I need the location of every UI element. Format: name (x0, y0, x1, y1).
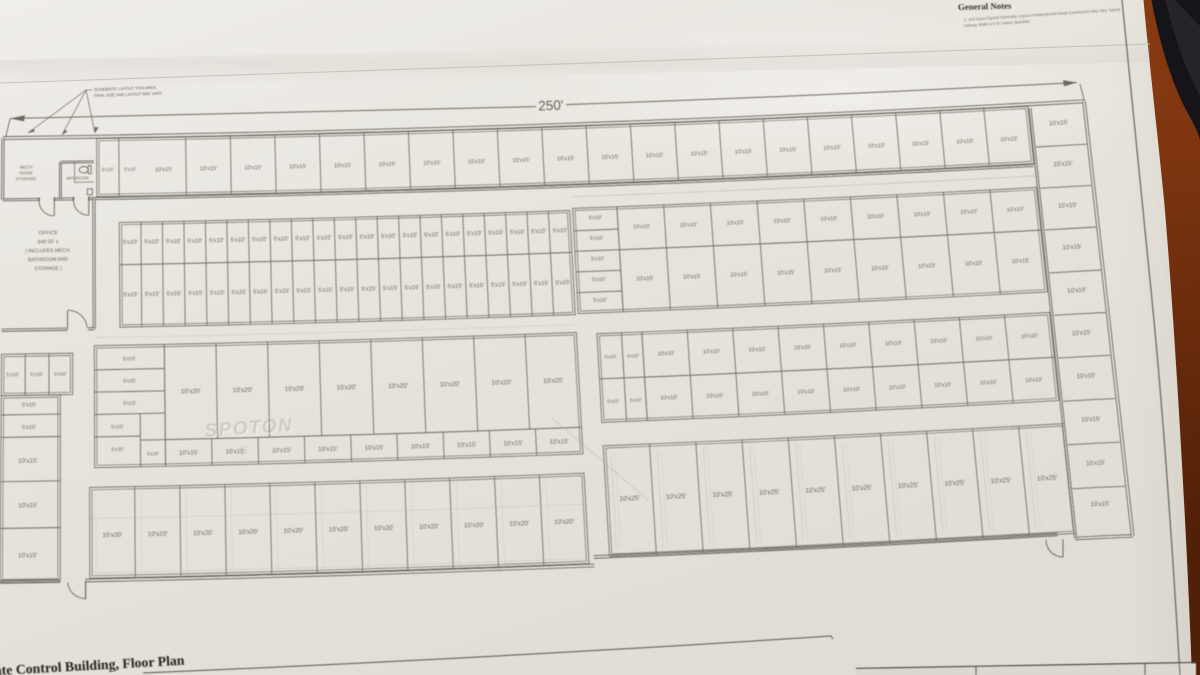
svg-text:5'x15': 5'x15' (22, 402, 36, 408)
svg-text:5'x10': 5'x10' (166, 239, 181, 245)
svg-text:10'x15': 10'x15' (735, 149, 753, 156)
svg-text:5'x10': 5'x10' (252, 237, 267, 243)
svg-text:10'x10': 10'x10' (706, 393, 723, 400)
svg-text:10'x15': 10'x15' (912, 141, 930, 148)
svg-text:10'x15': 10'x15' (601, 154, 619, 161)
svg-text:5'x15': 5'x15' (167, 291, 182, 297)
svg-text:5'x10': 5'x10' (488, 230, 503, 236)
svg-text:10'x15': 10'x15' (155, 167, 173, 173)
svg-text:5'x15': 5'x15' (275, 289, 290, 295)
svg-text:5'x15': 5'x15' (123, 292, 138, 298)
svg-text:10'x15': 10'x15' (690, 151, 708, 158)
svg-text:5'x10': 5'x10' (593, 297, 606, 303)
svg-text:10'x20': 10'x20' (543, 377, 563, 385)
svg-text:10'x15': 10'x15' (18, 458, 37, 465)
svg-text:5'x10': 5'x10' (592, 277, 605, 283)
svg-text:10'x20': 10'x20' (283, 527, 303, 535)
svg-text:10'x15': 10'x15' (200, 166, 218, 172)
svg-text:10'x15': 10'x15' (423, 160, 441, 167)
svg-text:10'x25': 10'x25' (1037, 474, 1058, 482)
svg-text:10'x20': 10'x20' (336, 384, 356, 392)
svg-text:10'x15': 10'x15' (871, 265, 889, 272)
svg-text:10'x10': 10'x10' (657, 351, 674, 358)
svg-text:5'x10': 5'x10' (30, 372, 43, 378)
svg-text:10'x15': 10'x15' (646, 153, 664, 160)
svg-text:5'x10': 5'x10' (590, 235, 603, 241)
svg-text:10'x20': 10'x20' (419, 523, 439, 531)
svg-text:10'x15': 10'x15' (18, 502, 37, 509)
svg-text:General Notes: General Notes (958, 1, 1012, 12)
svg-text:5'x10': 5'x10' (111, 447, 124, 453)
svg-text:ROOM: ROOM (19, 170, 33, 175)
svg-text:10'x15': 10'x15' (1067, 287, 1087, 295)
svg-text:10'x10': 10'x10' (913, 211, 930, 218)
svg-text:5'x10': 5'x10' (6, 372, 19, 378)
svg-text:5'x15': 5'x15' (318, 288, 333, 294)
svg-text:5'x15': 5'x15' (555, 280, 570, 287)
svg-text:5'x10': 5'x10' (510, 229, 525, 235)
svg-text:10'x15': 10'x15' (777, 270, 795, 277)
svg-text:10'x10': 10'x10' (660, 395, 677, 402)
svg-text:10'x15': 10'x15' (179, 449, 198, 456)
svg-text:5'x15': 5'x15' (232, 290, 247, 296)
svg-text:5'x15': 5'x15' (123, 378, 136, 384)
svg-text:10'x25': 10'x25' (712, 491, 733, 499)
svg-text:10'x15': 10'x15' (225, 448, 244, 455)
svg-text:5'x10': 5'x10' (630, 397, 642, 402)
svg-text:STORAGE: STORAGE (16, 176, 37, 181)
svg-text:5'x10': 5'x10' (381, 234, 396, 240)
svg-text:5'x15': 5'x15' (383, 286, 398, 292)
svg-text:BATHROOM: BATHROOM (66, 175, 88, 180)
svg-text:10'x10': 10'x10' (1007, 207, 1024, 214)
svg-text:5'x10': 5'x10' (274, 236, 289, 242)
svg-text:5'x10': 5'x10' (445, 232, 460, 238)
svg-text:840 SF ±: 840 SF ± (38, 239, 59, 245)
svg-text:10'x15': 10'x15' (823, 145, 841, 152)
svg-text:5'x10': 5'x10' (317, 235, 332, 241)
svg-text:5'x10': 5'x10' (402, 233, 417, 239)
svg-text:10'x20': 10'x20' (148, 531, 168, 538)
svg-text:10'x25': 10'x25' (759, 489, 780, 497)
svg-text:5'x10': 5'x10' (424, 232, 439, 238)
svg-text:10'x15': 10'x15' (956, 139, 974, 146)
svg-text:10'x10': 10'x10' (727, 220, 744, 227)
svg-text:5'x10': 5'x10' (295, 236, 310, 242)
svg-text:10'x10': 10'x10' (975, 336, 992, 343)
svg-text:5'x15': 5'x15' (123, 401, 136, 407)
svg-text:5'x15': 5'x15' (145, 292, 160, 298)
svg-text:10'x20': 10'x20' (440, 381, 460, 389)
svg-text:10'x20': 10'x20' (238, 529, 258, 537)
svg-text:10'x10': 10'x10' (867, 214, 884, 221)
svg-text:10'x10': 10'x10' (930, 338, 947, 345)
svg-text:5'x10': 5'x10' (531, 229, 546, 236)
svg-text:10'x15': 10'x15' (411, 443, 430, 451)
svg-text:5'x15': 5'x15' (188, 291, 203, 297)
svg-text:5'x15': 5'x15' (448, 284, 463, 290)
svg-text:10'x10': 10'x10' (820, 216, 837, 223)
svg-text:5'x15': 5'x15' (469, 283, 484, 289)
svg-text:10'x15': 10'x15' (334, 163, 352, 169)
svg-text:10'x20': 10'x20' (193, 530, 213, 537)
svg-text:10'x10': 10'x10' (794, 345, 811, 352)
svg-text:10'x20': 10'x20' (388, 383, 408, 391)
svg-text:10'x20': 10'x20' (374, 525, 394, 533)
svg-text:10'x25': 10'x25' (852, 484, 873, 492)
svg-text:10'x10': 10'x10' (843, 387, 860, 394)
svg-text:5'x10': 5'x10' (111, 424, 124, 430)
svg-text:10'x15': 10'x15' (1000, 136, 1018, 143)
svg-text:10'x15': 10'x15' (18, 552, 37, 559)
svg-text:10'x15': 10'x15' (272, 447, 291, 455)
svg-text:10'x10': 10'x10' (839, 343, 856, 350)
svg-text:10'x25': 10'x25' (805, 487, 826, 495)
svg-text:10'x25': 10'x25' (944, 480, 965, 488)
svg-text:10'x10': 10'x10' (1021, 333, 1038, 340)
svg-text:5'x15': 5'x15' (340, 287, 355, 293)
svg-text:10'x10': 10'x10' (633, 224, 650, 231)
svg-text:10'x25': 10'x25' (990, 477, 1011, 485)
svg-text:10'x15': 10'x15' (468, 159, 486, 166)
svg-text:5'x15': 5'x15' (512, 282, 527, 289)
svg-text:5'x10': 5'x10' (589, 215, 602, 221)
svg-text:10'x20': 10'x20' (329, 526, 349, 534)
svg-text:10'x15': 10'x15' (1072, 329, 1092, 337)
svg-text:10'x15': 10'x15' (918, 263, 936, 270)
svg-text:5'x10': 5'x10' (231, 237, 246, 243)
svg-text:10'x15': 10'x15' (1012, 258, 1030, 265)
svg-text:5'x10': 5'x10' (627, 353, 639, 358)
svg-text:5'x10': 5'x10' (209, 238, 224, 244)
svg-text:5'x15': 5'x15' (404, 285, 419, 291)
svg-text:10'x15': 10'x15' (824, 268, 842, 275)
svg-text:5'x10': 5'x10' (467, 231, 482, 237)
svg-text:5'x15': 5'x15' (123, 356, 136, 362)
svg-text:5'x10': 5'x10' (144, 239, 159, 245)
svg-text:5'x10': 5'x10' (338, 235, 353, 241)
svg-text:5'x10': 5'x10' (553, 228, 568, 235)
svg-text:5'x10': 5'x10' (591, 256, 604, 262)
svg-text:10'x15': 10'x15' (512, 158, 530, 165)
svg-text:10'x10': 10'x10' (680, 222, 697, 229)
svg-text:10'x15': 10'x15' (244, 165, 262, 171)
svg-text:10'x20': 10'x20' (181, 388, 201, 395)
svg-text:5'x10': 5'x10' (360, 234, 375, 240)
svg-text:10'x15': 10'x15' (550, 438, 569, 446)
svg-text:10'x20': 10'x20' (464, 522, 484, 530)
svg-text:5'x15': 5'x15' (253, 289, 268, 295)
svg-text:5'x15': 5'x15' (426, 284, 441, 290)
svg-text:10'x20': 10'x20' (285, 385, 305, 393)
svg-text:10'x15': 10'x15' (683, 274, 701, 281)
svg-text:10'x15': 10'x15' (1053, 160, 1073, 168)
svg-text:10'x15': 10'x15' (1062, 243, 1082, 251)
svg-text:10'x15': 10'x15' (1090, 500, 1110, 508)
svg-text:10'x10': 10'x10' (980, 380, 997, 387)
svg-text:10'x15': 10'x15' (378, 162, 396, 168)
svg-text:5'x10': 5'x10' (54, 371, 67, 377)
svg-text:10'x15': 10'x15' (365, 444, 384, 452)
svg-text:10'x20': 10'x20' (233, 387, 253, 394)
svg-text:250': 250' (538, 97, 564, 113)
svg-text:10'x20': 10'x20' (509, 520, 529, 528)
svg-text:10'x20': 10'x20' (492, 379, 512, 387)
svg-text:5'x10': 5'x10' (607, 398, 619, 403)
svg-text:5'x10': 5'x10' (605, 354, 617, 359)
svg-text:10'x10': 10'x10' (773, 218, 790, 225)
svg-text:10'x15': 10'x15' (1076, 372, 1096, 380)
svg-text:10'x10': 10'x10' (703, 349, 720, 356)
svg-text:5'x15': 5'x15' (296, 288, 311, 294)
svg-text:10'x15': 10'x15' (1058, 202, 1078, 210)
svg-text:BATHROOM AND: BATHROOM AND (28, 257, 69, 264)
svg-text:10'x15': 10'x15' (318, 446, 337, 454)
svg-text:MECH: MECH (20, 165, 32, 170)
svg-text:10'x15': 10'x15' (457, 441, 476, 449)
svg-text:10'x15': 10'x15' (868, 143, 886, 150)
svg-text:10'x10': 10'x10' (960, 209, 977, 216)
svg-text:10'x10': 10'x10' (1025, 377, 1042, 384)
svg-text:10'x15': 10'x15' (1049, 119, 1069, 127)
svg-text:10'x10': 10'x10' (885, 340, 902, 347)
svg-text:5'x15': 5'x15' (534, 281, 549, 288)
svg-text:5'x15': 5'x15' (102, 167, 114, 173)
svg-text:10'x15': 10'x15' (1081, 415, 1101, 423)
svg-text:10'x15': 10'x15' (289, 164, 307, 170)
svg-text:10'x10': 10'x10' (934, 382, 951, 389)
svg-text:5'x15': 5'x15' (22, 425, 36, 431)
svg-text:5'x15': 5'x15' (124, 167, 136, 173)
svg-text:10'x15': 10'x15' (1086, 459, 1106, 467)
svg-text:5'x10': 5'x10' (123, 240, 138, 246)
svg-text:10'x15': 10'x15' (730, 272, 748, 279)
svg-text:10'x15': 10'x15' (557, 156, 575, 163)
svg-text:OFFICE: OFFICE (39, 230, 59, 236)
svg-text:10'x25': 10'x25' (666, 493, 687, 501)
svg-text:10'x10': 10'x10' (889, 384, 906, 391)
svg-text:10'x15': 10'x15' (779, 147, 797, 154)
svg-text:5'x10': 5'x10' (187, 238, 202, 244)
svg-text:10'x10': 10'x10' (752, 391, 769, 398)
svg-text:5'x10': 5'x10' (147, 451, 159, 456)
svg-text:10'x25': 10'x25' (898, 482, 919, 490)
svg-text:10'x20': 10'x20' (554, 518, 574, 526)
svg-text:10'x10': 10'x10' (748, 347, 765, 354)
svg-text:5'x15': 5'x15' (361, 286, 376, 292)
svg-text:10'x15': 10'x15' (503, 440, 522, 448)
svg-text:5'x15': 5'x15' (491, 282, 506, 288)
svg-text:10'x20': 10'x20' (102, 532, 122, 539)
svg-text:10'x10': 10'x10' (797, 389, 814, 396)
svg-text:STORAGE ): STORAGE ) (34, 266, 62, 272)
svg-text:10'x15': 10'x15' (636, 276, 654, 283)
svg-text:10'x25': 10'x25' (619, 495, 640, 503)
svg-text:10'x15': 10'x15' (965, 261, 983, 268)
svg-text:5'x15': 5'x15' (210, 290, 225, 296)
svg-text:( INCLUDES MECH,: ( INCLUDES MECH, (25, 248, 71, 255)
